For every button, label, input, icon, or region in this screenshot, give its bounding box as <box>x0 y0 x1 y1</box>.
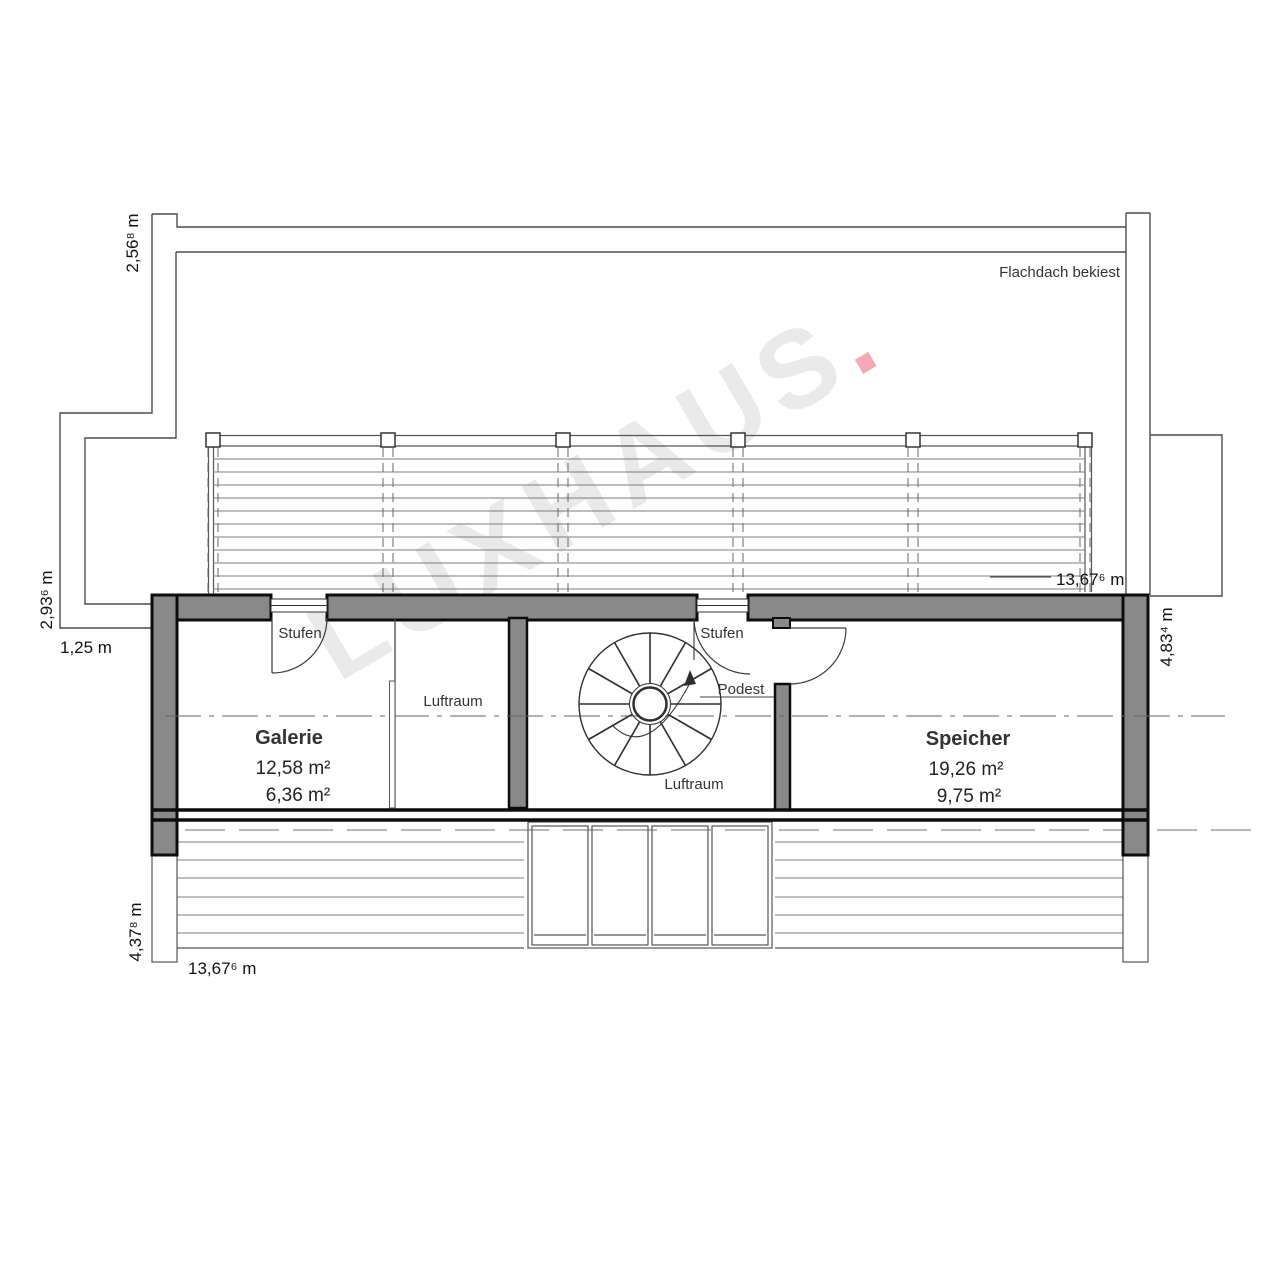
label-stufen-stair: Stufen <box>700 625 743 642</box>
wall-stair-left <box>509 618 527 808</box>
room-area-galerie-2: 6,36 m² <box>266 785 330 806</box>
label-podest: Podest <box>718 681 766 698</box>
dim-width-top: 13,67⁶ m <box>1056 570 1124 589</box>
dim-right-vertical: 4,83⁴ m <box>1157 607 1176 666</box>
room-area-speicher-1: 19,26 m² <box>929 759 1004 780</box>
wall-stair-right-stub <box>773 618 790 628</box>
room-area-speicher-2: 9,75 m² <box>937 786 1001 807</box>
wall-left <box>152 595 177 855</box>
label-luftraum-galerie: Luftraum <box>423 693 482 710</box>
room-name-speicher: Speicher <box>926 728 1011 750</box>
wall-top-right-segment <box>748 595 1148 620</box>
label-luftraum-stair: Luftraum <box>664 776 723 793</box>
galerie-railing <box>390 681 396 808</box>
label-stufen-galerie: Stufen <box>278 625 321 642</box>
room-name-galerie: Galerie <box>255 727 323 749</box>
wall-stair-right <box>775 684 790 810</box>
roof-note: Flachdach bekiest <box>999 264 1121 281</box>
dim-width-bottom: 13,67⁶ m <box>188 959 256 978</box>
room-area-galerie-1: 12,58 m² <box>256 758 331 779</box>
dim-left-offset: 1,25 m <box>60 638 112 657</box>
deck-right-column <box>1123 855 1148 962</box>
deck-left-column <box>152 855 177 962</box>
background <box>0 0 1280 1280</box>
stair-column <box>634 688 667 721</box>
floor-plan-drawing: LUXHAUS. <box>0 0 1280 1280</box>
wall-top-middle-segment <box>327 595 697 620</box>
floor-plan-sheet: LUXHAUS. <box>0 0 1280 1280</box>
wall-right <box>1123 595 1148 855</box>
dim-left-vertical: 2,93⁶ m <box>37 571 56 630</box>
dim-top-left-vertical: 2,56⁸ m <box>123 213 142 272</box>
dim-bottom-left-vertical: 4,37⁸ m <box>126 902 145 961</box>
